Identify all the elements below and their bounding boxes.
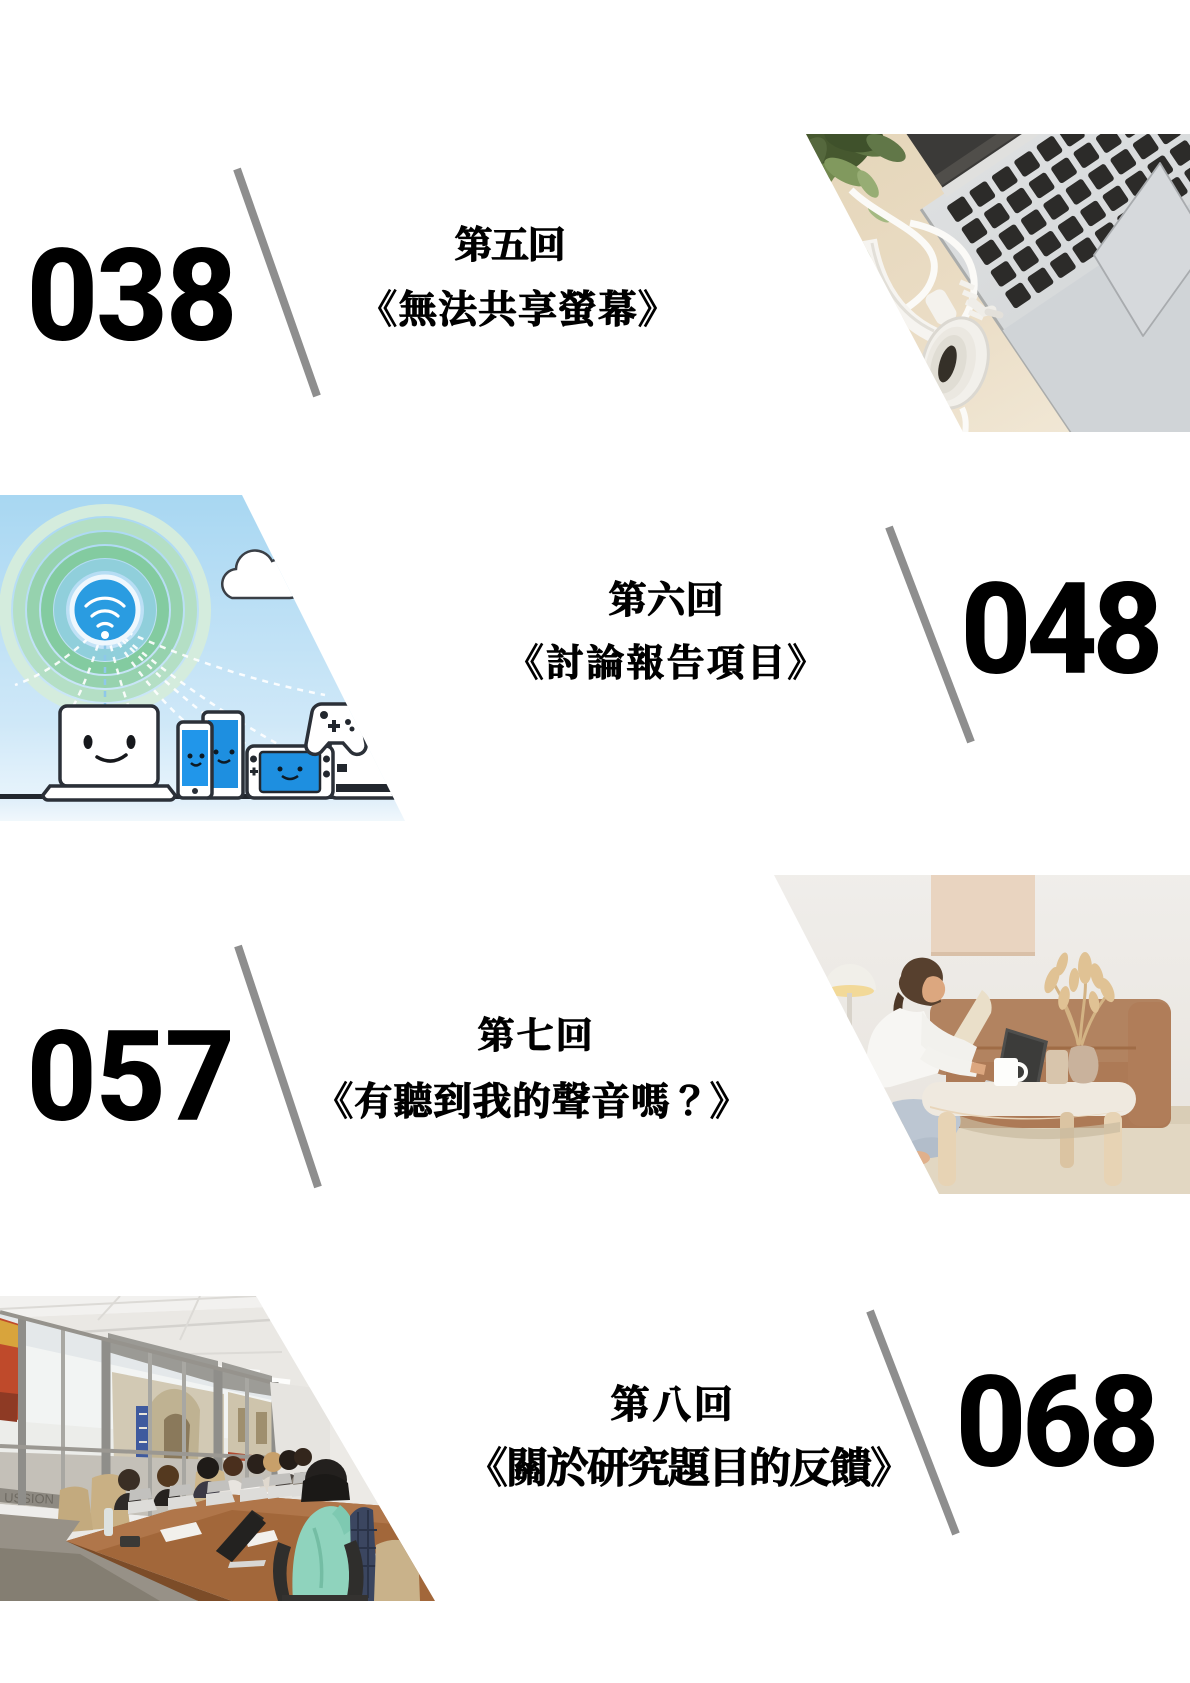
- svg-text:USSION: USSION: [4, 1490, 54, 1507]
